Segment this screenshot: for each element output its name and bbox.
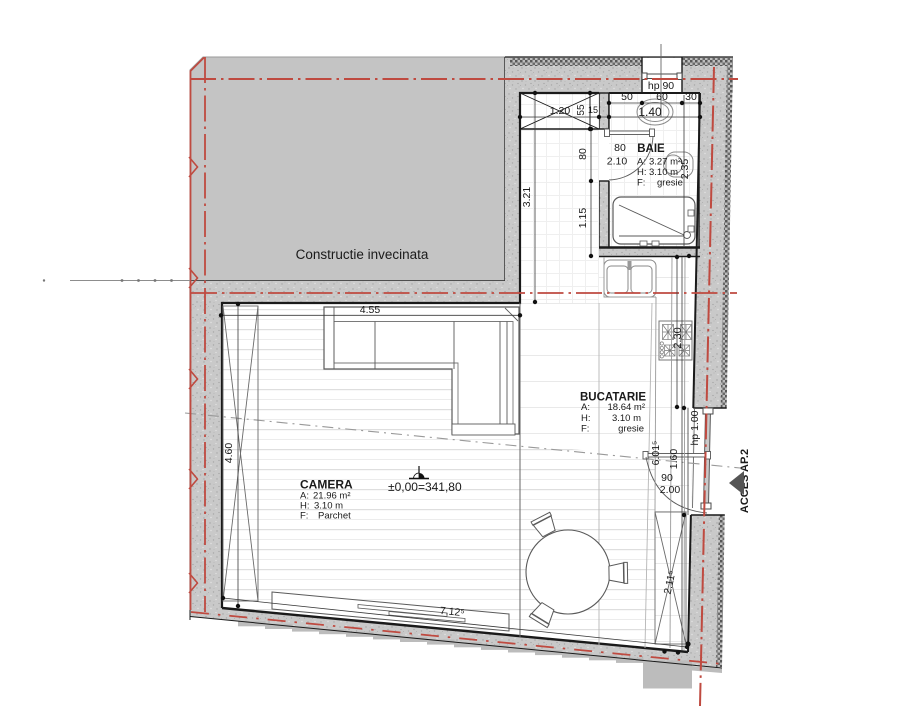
svg-text:7.12⁵: 7.12⁵ bbox=[439, 605, 465, 619]
svg-text:A:: A: bbox=[637, 157, 646, 168]
svg-text:60: 60 bbox=[656, 91, 668, 103]
svg-text:90: 90 bbox=[661, 472, 673, 484]
svg-text:55: 55 bbox=[576, 104, 587, 116]
svg-text:Constructie invecinata: Constructie invecinata bbox=[296, 247, 429, 262]
svg-text:6.01⁵: 6.01⁵ bbox=[650, 441, 662, 466]
svg-text:18.64 m²: 18.64 m² bbox=[608, 402, 646, 413]
svg-text:4.55: 4.55 bbox=[360, 304, 381, 316]
svg-text:±0,00=341,80: ±0,00=341,80 bbox=[388, 480, 462, 494]
svg-text:15: 15 bbox=[588, 105, 598, 115]
svg-text:Parchet: Parchet bbox=[318, 511, 351, 522]
svg-text:3.10 m: 3.10 m bbox=[649, 167, 678, 178]
svg-text:gresie: gresie bbox=[618, 424, 644, 435]
svg-text:1.20: 1.20 bbox=[550, 105, 571, 117]
svg-text:1.15: 1.15 bbox=[577, 208, 589, 229]
svg-text:80: 80 bbox=[614, 142, 626, 154]
svg-text:CAMERA: CAMERA bbox=[300, 478, 353, 492]
svg-text:H:: H: bbox=[637, 167, 647, 178]
svg-text:2.10: 2.10 bbox=[607, 156, 628, 168]
svg-text:H:: H: bbox=[581, 413, 591, 424]
svg-text:F:: F: bbox=[637, 178, 645, 189]
svg-text:BAIE: BAIE bbox=[637, 143, 665, 155]
svg-text:F:: F: bbox=[300, 511, 308, 522]
svg-text:30: 30 bbox=[685, 91, 697, 103]
svg-text:1.60: 1.60 bbox=[668, 449, 680, 470]
svg-text:2.00: 2.00 bbox=[660, 484, 681, 496]
svg-text:gresie: gresie bbox=[657, 178, 683, 189]
svg-text:A:: A: bbox=[581, 402, 590, 413]
svg-text:80: 80 bbox=[577, 148, 589, 160]
svg-text:3.21: 3.21 bbox=[521, 187, 533, 208]
svg-text:hp 1.00: hp 1.00 bbox=[689, 410, 701, 445]
svg-text:3.10 m: 3.10 m bbox=[612, 413, 641, 424]
svg-text:hp 90: hp 90 bbox=[648, 80, 674, 92]
svg-text:F:: F: bbox=[581, 424, 589, 435]
svg-text:1.40: 1.40 bbox=[638, 105, 662, 119]
svg-text:50: 50 bbox=[621, 91, 633, 103]
svg-text:4.60: 4.60 bbox=[223, 443, 235, 464]
svg-text:3.27 m²: 3.27 m² bbox=[649, 157, 681, 168]
svg-text:2.30: 2.30 bbox=[672, 327, 684, 348]
